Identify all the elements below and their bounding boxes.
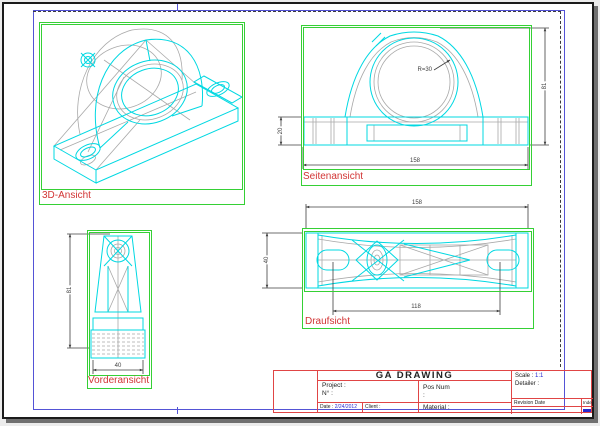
view-label-iso: 3D-Ansicht [42,190,91,201]
dim-top-holes: 118 [410,304,422,310]
dim-top-width: 158 [411,200,423,206]
dim-front-width: 40 [114,363,123,369]
date-value: 2/24/2012 [335,404,357,410]
pos-num-label: Pos Num [423,384,511,392]
title-block-client-cell: Client : [363,402,419,412]
index-mark [583,409,591,412]
title-block-date-cell: Date : 2/24/2012 [318,402,363,412]
view-label-front: Vorderansicht [88,375,149,386]
view-label-top: Draufsicht [305,316,350,327]
viewport-iso-inner [41,24,243,190]
dim-side-width: 158 [409,158,421,164]
project-label: Project : [322,382,418,390]
revision-date-header: Revision Date [511,398,581,406]
screen: 3D-Ansicht Seitenansicht Draufsicht Vord… [0,0,600,426]
material-label: Material : [423,404,450,411]
title-block: GA DRAWING Project : N° : Pos Num : Date… [273,370,592,413]
index-header: Index [581,398,593,406]
viewport-front-inner [89,232,150,376]
dim-side-base: 20 [278,127,284,136]
dim-side-radius: R=30 [416,67,433,73]
viewport-side-inner [303,27,530,170]
dim-front-height: 81 [67,286,73,295]
pos-num-value: : [423,392,511,400]
view-label-side: Seitenansicht [303,171,363,182]
date-label: Date : [320,404,333,410]
title-block-logo-cell [274,371,318,412]
number-label: N° : [322,390,418,398]
scale-value: 1:1 [535,373,543,379]
title-block-posnum-cell: Pos Num : [419,381,511,402]
dim-side-height: 81 [542,82,548,91]
title-block-material-cell: Material : [419,402,511,412]
viewport-top-inner [304,231,532,292]
title-block-scale-cell: Scale : 1:1 Detailer : [511,371,593,398]
title-block-title: GA DRAWING [318,371,511,381]
client-label: Client : [365,404,381,410]
detailer-label: Detailer : [515,380,593,388]
index-column-divider [581,406,582,414]
dim-top-depth: 40 [264,256,270,265]
title-block-project-cell: Project : N° : [318,381,419,402]
scale-label: Scale : [515,373,533,379]
